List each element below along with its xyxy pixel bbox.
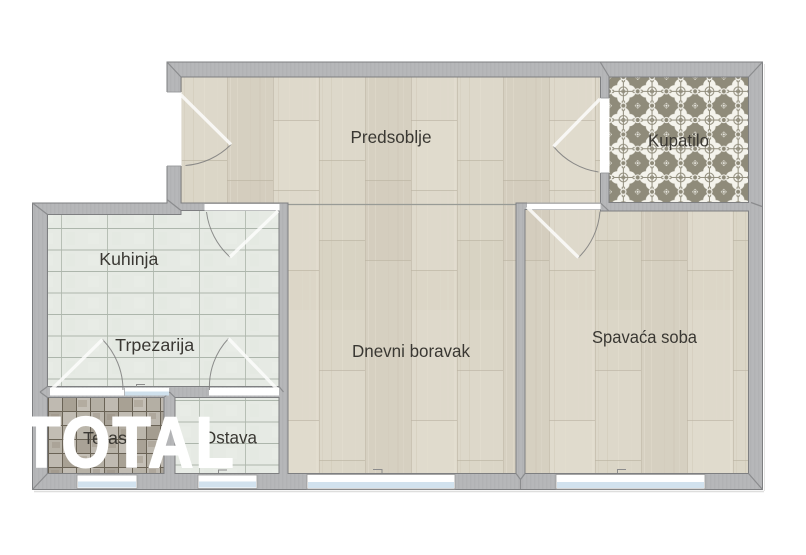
svg-text:Trpezarija: Trpezarija xyxy=(115,335,194,355)
svg-text:Dnevni boravak: Dnevni boravak xyxy=(352,341,470,361)
svg-text:Kupatilo: Kupatilo xyxy=(648,131,709,151)
svg-text:Kuhinja: Kuhinja xyxy=(99,249,158,269)
svg-text:Spavaća soba: Spavaća soba xyxy=(592,327,697,347)
svg-text:TOTAL: TOTAL xyxy=(22,403,235,483)
svg-text:Predsoblje: Predsoblje xyxy=(351,127,432,147)
